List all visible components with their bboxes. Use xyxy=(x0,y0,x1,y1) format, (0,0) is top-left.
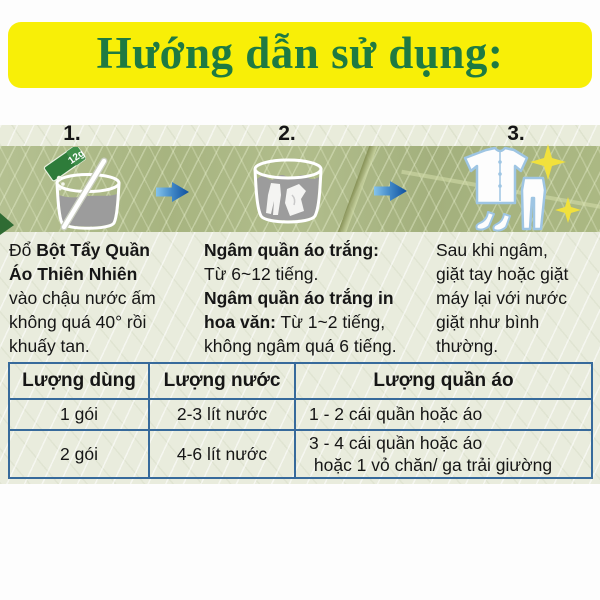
dosage-table: Lượng dùng Lượng nước Lượng quần áo 1 gó… xyxy=(8,362,593,479)
step2-description: Ngâm quần áo trắng: Từ 6~12 tiếng. Ngâm … xyxy=(204,238,430,358)
table-cell-dose: 1 gói xyxy=(9,399,149,430)
table-row: 2 gói 4-6 lít nước 3 - 4 cái quần hoặc á… xyxy=(9,430,592,478)
leaf-stem-decoration xyxy=(332,146,381,232)
step3-description: Sau khi ngâm, giặt tay hoặc giặt máy lại… xyxy=(436,238,600,358)
step-number-1: 1. xyxy=(55,122,89,146)
table-header-row: Lượng dùng Lượng nước Lượng quần áo xyxy=(9,363,592,399)
table-header-water: Lượng nước xyxy=(149,363,295,399)
step1-description: Đổ Bột Tẩy Quần Áo Thiên Nhiên vào chậu … xyxy=(9,238,199,358)
table-row: 1 gói 2-3 lít nước 1 - 2 cái quần hoặc á… xyxy=(9,399,592,430)
instruction-infographic: Hướng dẫn sử dụng: 1. 2. 3. 12g xyxy=(0,0,600,600)
page-title: Hướng dẫn sử dụng: xyxy=(97,27,504,83)
arrow-right-icon xyxy=(374,181,408,201)
step-number-2: 2. xyxy=(270,122,304,146)
table-cell-water: 2-3 lít nước xyxy=(149,399,295,430)
table-cell-clothes-text: 3 - 4 cái quần hoặc áo hoặc 1 vỏ chăn/ g… xyxy=(309,432,591,476)
table-cell-clothes: 1 - 2 cái quần hoặc áo xyxy=(295,399,592,430)
sparkle-icon xyxy=(530,144,566,180)
table-header-dose: Lượng dùng xyxy=(9,363,149,399)
table-cell-clothes: 3 - 4 cái quần hoặc áo hoặc 1 vỏ chăn/ g… xyxy=(295,430,592,478)
table-cell-dose: 2 gói xyxy=(9,430,149,478)
mixing-basin-icon: 12g xyxy=(36,147,140,233)
clean-clothes-icon xyxy=(456,140,584,235)
title-banner: Hướng dẫn sử dụng: xyxy=(8,22,592,88)
soaking-basin-icon xyxy=(240,153,336,233)
sparkle-icon xyxy=(555,197,581,223)
table-cell-water: 4-6 lít nước xyxy=(149,430,295,478)
table-header-clothes: Lượng quần áo xyxy=(295,363,592,399)
arrow-right-icon xyxy=(156,182,190,202)
